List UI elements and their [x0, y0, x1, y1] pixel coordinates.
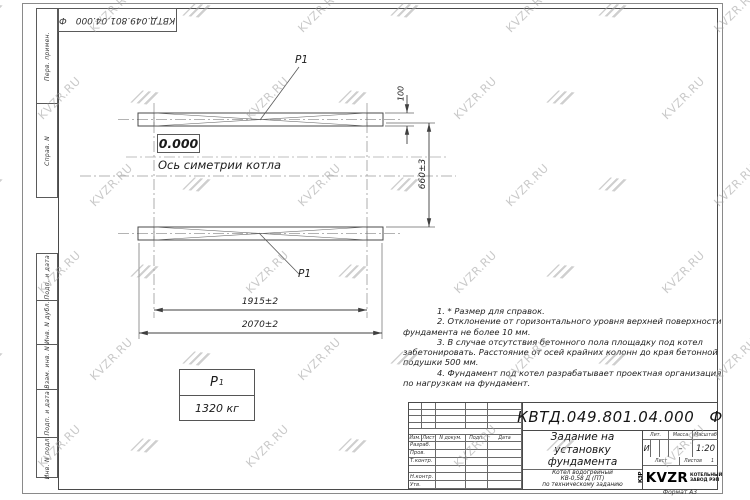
note-line: по нагрузкам на фундамент.: [403, 378, 725, 388]
signature-cell: [488, 450, 522, 458]
p1-top-leader-line: [260, 67, 299, 120]
signature-cell: [488, 473, 522, 481]
massa-label: Масса: [669, 431, 692, 440]
massa-value: –: [669, 440, 692, 457]
p1-top-label: Р1: [295, 54, 308, 66]
masshtab-column: Масштаб 1:20: [693, 431, 718, 457]
signature-cell: [488, 458, 522, 466]
designation-cell: КВТД.049.801.04.000 Ф: [522, 403, 717, 431]
product-name: Котел водогрейный КВ-0,58 Д (ПТ) по техн…: [523, 470, 642, 488]
masshtab-label: Масштаб: [693, 431, 718, 440]
logo-caption-line: ЗАВОД РЭП: [690, 478, 722, 483]
signature-row-label: Пров.: [409, 450, 436, 458]
signature-cell: [436, 473, 466, 481]
signature-row-label: Т.контр.: [409, 458, 436, 466]
header-n-dokum: N докум.: [436, 435, 466, 442]
lit-massa-masshtab: Лит. И Масса – Масштаб 1:20: [643, 431, 718, 457]
technical-notes: 1. * Размер для справок. 2. Отклонение о…: [403, 306, 725, 388]
note-line: 3. В случае отсутствия бетонного пола пл…: [403, 337, 725, 347]
massa-column: Масса –: [669, 431, 693, 457]
signature-row-label: [409, 466, 436, 474]
signature-cell: [466, 473, 488, 481]
dim-100-value: 100: [397, 74, 406, 114]
lit-cell-empty: [651, 440, 659, 457]
title-line: Задание на: [551, 431, 615, 444]
load-symbol-letter: Р: [210, 375, 218, 390]
list-label: Лист: [643, 457, 680, 465]
signature-cell: [466, 450, 488, 458]
designation-suffix: Ф: [709, 408, 723, 426]
lit-value: И: [643, 440, 651, 457]
note-line: фундамента не более 10 мм.: [403, 327, 725, 337]
signature-cell: [488, 481, 522, 489]
p1-bottom-label: Р1: [298, 268, 311, 280]
zero-level-mark: 0.000: [157, 134, 200, 153]
listov-label: Листов: [684, 459, 702, 464]
dim-660-value: 660±3: [418, 152, 428, 196]
listov-cell: Листов 1: [680, 457, 718, 465]
company-logo: КЗР KVZR КОТЕЛЬНЫЙ ЗАВОД РЭП: [643, 466, 718, 489]
signature-table: Разраб.Пров.Т.контр.Н.контр.Утв.: [409, 442, 522, 489]
load-value: 1320 кг: [180, 396, 254, 420]
header-podp: Подп.: [466, 435, 488, 442]
kvzr-logo-caption: КОТЕЛЬНЫЙ ЗАВОД РЭП: [690, 473, 722, 483]
dim-2070-value: 2070±2: [200, 320, 320, 330]
note-line: подушки 500 мм.: [403, 357, 725, 367]
dim-1915-value: 1915±2: [200, 297, 320, 307]
kvzr-logo-name: KVZR: [646, 470, 688, 486]
signature-row-label: Н.контр.: [409, 473, 436, 481]
note-line: 1. * Размер для справок.: [403, 306, 725, 316]
revision-table: [409, 403, 522, 429]
signature-cell: [436, 481, 466, 489]
signature-cell: [488, 466, 522, 474]
lit-label: Лит.: [643, 431, 668, 440]
load-symbol-sub: 1: [219, 378, 224, 387]
masshtab-value: 1:20: [693, 440, 718, 457]
lit-cells: И: [643, 440, 668, 457]
note-line: 4. Фундамент под котел разрабатывает про…: [403, 368, 725, 378]
signature-cell: [436, 466, 466, 474]
load-symbol: Р1: [180, 370, 254, 396]
signature-cell: [466, 458, 488, 466]
header-data: Дата: [488, 435, 522, 442]
zero-level-value: 0.000: [159, 136, 199, 151]
signature-cell: [466, 442, 488, 450]
header-izm: Изм.: [409, 435, 422, 442]
designation-number: КВТД.049.801.04.000: [517, 408, 694, 426]
signature-cell: [488, 442, 522, 450]
title-block: Изм. Лист N докум. Подп. Дата Разраб.Про…: [408, 402, 718, 490]
title-block-right: Лит. И Масса – Масштаб 1:20 Лист: [642, 431, 717, 489]
load-table: Р1 1320 кг: [179, 369, 255, 421]
lit-column: Лит. И: [643, 431, 669, 457]
signature-table-header: Изм. Лист N докум. Подп. Дата: [409, 435, 522, 442]
product-line: по техническому заданию: [542, 482, 623, 488]
p1-bottom-leader-line: [259, 233, 299, 274]
drawing-sheet: КВТД.049.801.04.000Ф Перв. примен. Справ…: [0, 0, 750, 500]
format-label: Формат А3: [637, 489, 723, 496]
title-line: установку: [554, 444, 611, 457]
boiler-symmetry-axis-label: Ось симетрии котла: [158, 158, 281, 172]
signature-cell: [436, 458, 466, 466]
signature-cell: [466, 481, 488, 489]
header-list: Лист: [422, 435, 436, 442]
document-title: Задание на установку фундамента: [523, 431, 642, 470]
document-title-cell: Задание на установку фундамента Котел во…: [522, 431, 642, 489]
note-line: забетонировать. Расстояние от осей крайн…: [403, 347, 725, 357]
signature-cell: [436, 442, 466, 450]
signature-cell: [436, 450, 466, 458]
signature-cell: [466, 466, 488, 474]
kvzr-logo-mark: КЗР: [639, 472, 644, 483]
note-line: 2. Отклонение от горизонтального уровня …: [403, 316, 725, 326]
listov-value: 1: [711, 459, 714, 464]
title-line: фундамента: [548, 456, 618, 469]
lit-cell-empty: [660, 440, 668, 457]
signature-row-label: Утв.: [409, 481, 436, 489]
sheet-count-row: Лист Листов 1: [643, 457, 718, 466]
signature-row-label: Разраб.: [409, 442, 436, 450]
